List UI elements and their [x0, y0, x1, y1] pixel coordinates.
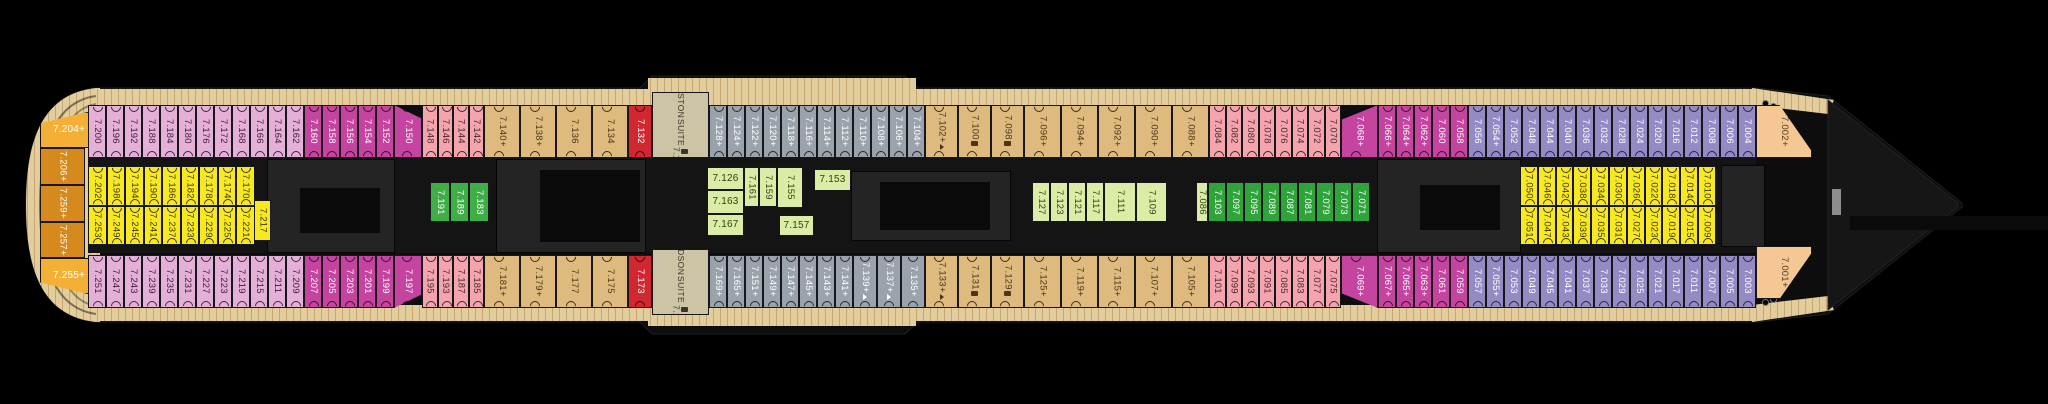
- cabin-7.074[interactable]: 7.074: [1292, 105, 1309, 158]
- cabin-7.173[interactable]: 7.173: [628, 255, 652, 308]
- cabin-number: 7.061: [1436, 269, 1446, 294]
- cabin-number: 7.107: [1149, 266, 1159, 291]
- cabin-number: 7.060: [1436, 119, 1446, 144]
- cabin-7.164[interactable]: 7.164: [268, 105, 286, 158]
- cabin-7.134[interactable]: 7.134: [592, 105, 628, 158]
- cabin-7.135[interactable]: 7.135+: [901, 255, 925, 308]
- cabin-7.037[interactable]: 7.037: [1576, 255, 1594, 308]
- cabin-7.077[interactable]: 7.077: [1308, 255, 1325, 308]
- cabin-number: 7.156: [344, 119, 354, 144]
- cabin-7.085[interactable]: 7.085: [1275, 255, 1292, 308]
- cabin-7.025[interactable]: 7.025: [1630, 255, 1648, 308]
- cabin-7.040[interactable]: 7.040: [1558, 105, 1576, 158]
- cabin-7.142[interactable]: 7.142: [469, 105, 485, 158]
- cabin-number: 7.130: [671, 147, 681, 158]
- cabin-7.114[interactable]: 7.114+: [817, 105, 835, 158]
- cabin-number: 7.187: [456, 269, 466, 294]
- cabin-7.201[interactable]: 7.201: [358, 255, 376, 308]
- cabin-7.116[interactable]: 7.116+: [799, 105, 817, 158]
- cabin-7.160[interactable]: 7.160: [304, 105, 322, 158]
- cabin-7.006[interactable]: 7.006: [1720, 105, 1738, 158]
- cabin-7.162[interactable]: 7.162: [286, 105, 304, 158]
- cabin-7.103[interactable]: 7.103: [1208, 182, 1226, 222]
- cabin-7.044[interactable]: 7.044: [1540, 105, 1558, 158]
- cabin-number: 7.098: [1003, 115, 1013, 140]
- cabin-7.003[interactable]: 7.003: [1738, 255, 1756, 308]
- cabin-number: 7.225: [222, 213, 232, 238]
- cabin-7.120[interactable]: 7.120+: [763, 105, 781, 158]
- suite-name: BOSTON: [676, 92, 685, 118]
- cabin-7.067[interactable]: 7.067+: [1378, 255, 1396, 308]
- cabin-7.223[interactable]: 7.223: [214, 255, 232, 308]
- cabin-7.153[interactable]: 7.153: [814, 169, 851, 191]
- cabin-7.166[interactable]: 7.166: [250, 105, 268, 158]
- cabin-7.175[interactable]: 7.175: [592, 255, 628, 308]
- cabin-7.193[interactable]: 7.193: [438, 255, 454, 308]
- cabin-number: 7.169: [713, 266, 723, 291]
- cabin-7.150[interactable]: 7.150: [394, 105, 422, 158]
- cabin-7.130[interactable]: BOSTONSUITE7.130: [652, 92, 709, 158]
- cabin-7.161[interactable]: 7.161: [744, 167, 759, 207]
- cabin-7.159[interactable]: 7.159: [759, 167, 777, 207]
- cabin-7.243[interactable]: 7.243: [124, 255, 142, 308]
- cabin-7.199[interactable]: 7.199: [376, 255, 394, 308]
- cabin-number: 7.089: [1266, 190, 1276, 215]
- cabin-7.145[interactable]: 7.145+: [799, 255, 817, 308]
- cabin-7.195[interactable]: 7.195: [422, 255, 438, 308]
- cabin-7.154[interactable]: 7.154: [358, 105, 376, 158]
- cabin-7.231[interactable]: 7.231: [178, 255, 196, 308]
- cabin-7.027[interactable]: 7.027: [1627, 206, 1645, 245]
- cabin-number: 7.106: [893, 116, 903, 141]
- cabin-7.061[interactable]: 7.061: [1432, 255, 1450, 308]
- cabin-7.108[interactable]: 7.108+: [871, 105, 889, 158]
- cabin-number: 7.219: [236, 269, 246, 294]
- cabin-7.084[interactable]: 7.084: [1209, 105, 1226, 158]
- cabin-7.117[interactable]: 7.117: [1086, 182, 1104, 222]
- cabin-7.086[interactable]: 7.086: [1196, 182, 1208, 222]
- cabin-number: 7.152: [380, 119, 390, 144]
- cabin-7.253[interactable]: 7.253: [88, 206, 107, 245]
- cabin-7.155[interactable]: 7.155: [777, 167, 803, 208]
- cabin-7.020[interactable]: 7.020: [1648, 105, 1666, 158]
- cabin-7.239[interactable]: 7.239: [142, 255, 160, 308]
- cabin-number: 7.253: [93, 213, 103, 238]
- cabin-number: 7.095: [1248, 190, 1258, 215]
- cabin-7.109[interactable]: 7.109: [1136, 182, 1167, 222]
- cabin-7.094[interactable]: 7.094+: [1061, 105, 1098, 158]
- cabin-number: 7.164: [272, 119, 282, 144]
- cabin-number: 7.017: [1670, 269, 1680, 294]
- cabin-7.119[interactable]: 7.119+: [1061, 255, 1098, 308]
- cabin-7.075[interactable]: 7.075: [1325, 255, 1342, 308]
- cabin-7.225[interactable]: 7.225: [218, 206, 237, 245]
- cabin-7.104[interactable]: 7.104+: [907, 105, 925, 158]
- cabin-7.031[interactable]: 7.031: [1609, 206, 1627, 245]
- cabin-7.180[interactable]: 7.180: [178, 105, 196, 158]
- cabin-7.182[interactable]: 7.182: [181, 166, 200, 206]
- cabin-7.111[interactable]: 7.111: [1104, 182, 1136, 222]
- cabin-7.157[interactable]: 7.157: [779, 215, 814, 236]
- cabin-7.106[interactable]: 7.106+: [889, 105, 907, 158]
- cabin-7.179[interactable]: 7.179+: [520, 255, 556, 308]
- cabin-7.200[interactable]: 7.200: [88, 105, 106, 158]
- cabin-7.059[interactable]: 7.059: [1450, 255, 1468, 308]
- cabin-7.101[interactable]: 7.101: [1209, 255, 1226, 308]
- cabin-7.209[interactable]: 7.209: [286, 255, 304, 308]
- cabin-7.188[interactable]: 7.188: [142, 105, 160, 158]
- cabin-7.014[interactable]: 7.014: [1680, 166, 1698, 206]
- cabin-7.191[interactable]: 7.191: [430, 182, 450, 222]
- cabin-number: 7.048: [1526, 119, 1536, 144]
- cabin-7.071[interactable]: 7.071: [1352, 182, 1370, 222]
- cabin-7.221[interactable]: 7.221: [236, 206, 255, 245]
- cabin-7.076[interactable]: 7.076: [1275, 105, 1292, 158]
- cabin-7.127[interactable]: 7.127: [1032, 182, 1050, 222]
- cabin-7.198[interactable]: 7.198: [107, 166, 126, 206]
- cabin-7.152[interactable]: 7.152: [376, 105, 394, 158]
- cabin-7.156[interactable]: 7.156: [340, 105, 358, 158]
- cabin-number: 7.209: [290, 269, 300, 294]
- cabin-number: 7.022: [1649, 174, 1659, 199]
- cabin-7.137[interactable]: 7.137+: [877, 255, 901, 308]
- cabin-7.168[interactable]: 7.168: [232, 105, 250, 158]
- cabin-7.211[interactable]: 7.211: [268, 255, 286, 308]
- cabin-7.001[interactable]: 7.001+: [1756, 246, 1812, 299]
- cabin-7.259[interactable]: 7.259+: [40, 185, 85, 222]
- cabin-7.251[interactable]: 7.251: [88, 255, 106, 308]
- cabin-number: 7.245: [130, 213, 140, 238]
- cabin-7.069[interactable]: 7.069+: [1341, 255, 1378, 308]
- cabin-number: 7.099: [1229, 269, 1239, 294]
- cabin-7.170[interactable]: 7.170: [236, 166, 255, 206]
- cabin-7.125[interactable]: 7.125+: [1024, 255, 1061, 308]
- cabin-7.121[interactable]: 7.121: [1068, 182, 1086, 222]
- cabin-7.028[interactable]: 7.028: [1612, 105, 1630, 158]
- cabin-7.100[interactable]: 7.100: [958, 105, 991, 158]
- cabin-7.235[interactable]: 7.235: [160, 255, 178, 308]
- cabin-7.035[interactable]: 7.035: [1591, 206, 1609, 245]
- cabin-7.190[interactable]: 7.190: [144, 166, 163, 206]
- cabin-7.131[interactable]: 7.131: [958, 255, 991, 308]
- cabin-7.089[interactable]: 7.089: [1262, 182, 1280, 222]
- cabin-7.202[interactable]: 7.202: [88, 166, 107, 206]
- cabin-7.241[interactable]: 7.241: [144, 206, 163, 245]
- cabin-number: 7.040: [1562, 119, 1572, 144]
- cabin-7.249[interactable]: 7.249: [107, 206, 126, 245]
- cabin-7.055[interactable]: 7.055+: [1486, 255, 1504, 308]
- cabin-7.081[interactable]: 7.081: [1298, 182, 1316, 222]
- cabin-7.092[interactable]: 7.092+: [1098, 105, 1135, 158]
- cabin-number: 7.215: [254, 269, 264, 294]
- cabin-number: 7.128: [713, 116, 723, 141]
- cabin-7.078[interactable]: 7.078: [1259, 105, 1276, 158]
- cabin-7.107[interactable]: 7.107+: [1135, 255, 1172, 308]
- cabin-7.045[interactable]: 7.045: [1540, 255, 1558, 308]
- cabin-7.051[interactable]: 7.051: [1520, 206, 1538, 245]
- cabin-7.082[interactable]: 7.082: [1226, 105, 1243, 158]
- cabin-7.174[interactable]: 7.174: [218, 166, 237, 206]
- cabin-number: 7.063: [1418, 266, 1428, 291]
- cabin-7.038[interactable]: 7.038: [1573, 166, 1591, 206]
- cabin-7.066[interactable]: 7.066+: [1378, 105, 1396, 158]
- cabin-7.017[interactable]: 7.017: [1666, 255, 1684, 308]
- cabin-number: 7.090: [1149, 116, 1159, 141]
- cabin-7.012[interactable]: 7.012: [1684, 105, 1702, 158]
- cabin-7.098[interactable]: 7.098: [991, 105, 1024, 158]
- cabin-7.118[interactable]: 7.118+: [781, 105, 799, 158]
- cabin-7.054[interactable]: 7.054+: [1486, 105, 1504, 158]
- cabin-7.167[interactable]: 7.167: [707, 214, 744, 236]
- cabin-number: 7.079: [1320, 190, 1330, 215]
- cabin-7.123[interactable]: 7.123: [1050, 182, 1068, 222]
- cabin-7.245[interactable]: 7.245: [125, 206, 144, 245]
- cabin-7.133[interactable]: 7.133+: [925, 255, 958, 308]
- cabin-7.110[interactable]: 7.110+: [853, 105, 871, 158]
- cabin-7.016[interactable]: 7.016: [1666, 105, 1684, 158]
- cabin-number: 7.074: [1295, 119, 1305, 144]
- cabin-7.032[interactable]: 7.032: [1594, 105, 1612, 158]
- cabin-7.053[interactable]: 7.053: [1504, 255, 1522, 308]
- cabin-7.042[interactable]: 7.042: [1556, 166, 1574, 206]
- cabin-7.024[interactable]: 7.024: [1630, 105, 1648, 158]
- cabin-number: 7.123: [1054, 190, 1064, 215]
- cabin-7.147[interactable]: 7.147+: [781, 255, 799, 308]
- sofa-icon: [1004, 291, 1011, 296]
- cabin-7.052[interactable]: 7.052: [1504, 105, 1522, 158]
- cabin-7.073[interactable]: 7.073: [1334, 182, 1352, 222]
- cabin-number: 7.131: [970, 265, 980, 290]
- cabin-7.018[interactable]: 7.018: [1662, 166, 1680, 206]
- cabin-7.148[interactable]: 7.148: [422, 105, 438, 158]
- cabin-number: 7.051: [1524, 213, 1534, 238]
- cabin-7.095[interactable]: 7.095: [1244, 182, 1262, 222]
- cabin-7.063[interactable]: 7.063+: [1414, 255, 1432, 308]
- cabin-7.203[interactable]: 7.203: [340, 255, 358, 308]
- cabin-7.207[interactable]: 7.207: [304, 255, 322, 308]
- cabin-7.023[interactable]: 7.023: [1645, 206, 1663, 245]
- cabin-number: 7.247: [110, 269, 120, 294]
- cabin-7.046[interactable]: 7.046: [1538, 166, 1556, 206]
- cabin-number: 7.167: [712, 220, 738, 230]
- cabin-7.171[interactable]: HUDSONSUITE7.171: [652, 249, 709, 315]
- cabin-7.186[interactable]: 7.186: [162, 166, 181, 206]
- cabin-7.257[interactable]: 7.257+: [40, 222, 85, 258]
- cabin-number: 7.004: [1742, 119, 1752, 144]
- cabin-7.158[interactable]: 7.158: [322, 105, 340, 158]
- cabin-7.070[interactable]: 7.070: [1325, 105, 1342, 158]
- cabin-7.079[interactable]: 7.079: [1316, 182, 1334, 222]
- cabin-7.021[interactable]: 7.021: [1648, 255, 1666, 308]
- cabin-7.138[interactable]: 7.138+: [520, 105, 556, 158]
- cabin-7.080[interactable]: 7.080: [1242, 105, 1259, 158]
- cabin-7.141[interactable]: 7.141+: [835, 255, 853, 308]
- cabin-7.026[interactable]: 7.026: [1627, 166, 1645, 206]
- cabin-7.165[interactable]: 7.165+: [727, 255, 745, 308]
- cabin-7.194[interactable]: 7.194: [125, 166, 144, 206]
- cabin-7.005[interactable]: 7.005: [1720, 255, 1738, 308]
- cabin-7.128[interactable]: 7.128+: [709, 105, 727, 158]
- cabin-number: 7.255: [53, 271, 79, 281]
- cabin-7.139[interactable]: 7.139+: [853, 255, 877, 308]
- cabin-7.177[interactable]: 7.177: [556, 255, 592, 308]
- cabin-number: 7.237: [167, 213, 177, 238]
- cabin-7.247[interactable]: 7.247: [106, 255, 124, 308]
- cabin-7.237[interactable]: 7.237: [162, 206, 181, 245]
- cabin-7.112[interactable]: 7.112+: [835, 105, 853, 158]
- cabin-number: 7.002: [1779, 116, 1789, 141]
- cabin-7.064[interactable]: 7.064+: [1396, 105, 1414, 158]
- cabin-number: 7.196: [110, 119, 120, 144]
- cabin-number: 7.259: [58, 188, 68, 213]
- cabin-7.068[interactable]: 7.068+: [1341, 105, 1378, 158]
- cabin-7.181[interactable]: 7.181+: [484, 255, 520, 308]
- cabin-number: 7.155: [785, 175, 795, 200]
- cabin-number: 7.062: [1418, 116, 1428, 141]
- cabin-7.140[interactable]: 7.140+: [484, 105, 520, 158]
- cabin-7.010[interactable]: 7.010: [1698, 166, 1716, 206]
- cabin-7.057[interactable]: 7.057: [1468, 255, 1486, 308]
- cabin-number: 7.116: [803, 117, 813, 141]
- cabin-number: 7.111: [1115, 190, 1125, 213]
- cabin-number: 7.105: [1186, 266, 1196, 291]
- accessible-icon: [940, 294, 944, 300]
- cabin-7.041[interactable]: 7.041: [1558, 255, 1576, 308]
- cabin-7.206[interactable]: 7.206+: [40, 148, 85, 185]
- cabin-7.122[interactable]: 7.122+: [745, 105, 763, 158]
- cabin-7.172[interactable]: 7.172: [214, 105, 232, 158]
- cabin-7.102[interactable]: 7.102+: [925, 105, 958, 158]
- cabin-7.105[interactable]: 7.105+: [1172, 255, 1209, 308]
- cabin-number: 7.084: [1213, 119, 1223, 144]
- cabin-7.215[interactable]: 7.215: [250, 255, 268, 308]
- cabin-7.050[interactable]: 7.050: [1520, 166, 1538, 206]
- cabin-7.144[interactable]: 7.144: [453, 105, 469, 158]
- cabin-number: 7.127: [1036, 190, 1046, 215]
- cabin-7.219[interactable]: 7.219: [232, 255, 250, 308]
- cabin-7.132[interactable]: 7.132: [628, 105, 652, 158]
- cabin-7.009[interactable]: 7.009: [1698, 206, 1716, 245]
- cabin-7.036[interactable]: 7.036: [1576, 105, 1594, 158]
- deck-plan: 7.204+7.206+7.259+7.257+7.255+7.2007.196…: [0, 0, 2048, 404]
- cabin-number: 7.035: [1595, 213, 1605, 238]
- cabin-7.008[interactable]: 7.008: [1702, 105, 1720, 158]
- cabin-7.002[interactable]: 7.002+: [1756, 105, 1812, 158]
- cabin-7.129[interactable]: 7.129: [991, 255, 1024, 308]
- cabin-7.217[interactable]: 7.217: [254, 200, 271, 241]
- cabin-7.151[interactable]: 7.151+: [745, 255, 763, 308]
- cabin-7.196[interactable]: 7.196: [106, 105, 124, 158]
- cabin-7.185[interactable]: 7.185: [469, 255, 485, 308]
- cabin-number: 7.211: [272, 269, 282, 293]
- cabin-7.039[interactable]: 7.039: [1573, 206, 1591, 245]
- cabin-7.233[interactable]: 7.233: [181, 206, 200, 245]
- cabin-7.034[interactable]: 7.034: [1591, 166, 1609, 206]
- cabin-7.022[interactable]: 7.022: [1645, 166, 1663, 206]
- cabin-7.062[interactable]: 7.062+: [1414, 105, 1432, 158]
- cabin-7.088[interactable]: 7.088+: [1172, 105, 1209, 158]
- cabin-7.126[interactable]: 7.126: [707, 167, 744, 190]
- cabin-7.096[interactable]: 7.096+: [1024, 105, 1061, 158]
- cabin-number: 7.138: [533, 116, 543, 141]
- cabin-7.090[interactable]: 7.090+: [1135, 105, 1172, 158]
- cabin-number: 7.126: [712, 174, 738, 184]
- cabin-7.056[interactable]: 7.056: [1468, 105, 1486, 158]
- cabin-7.083[interactable]: 7.083: [1292, 255, 1309, 308]
- cabin-number: 7.070: [1328, 119, 1338, 144]
- cabin-7.183[interactable]: 7.183: [469, 182, 489, 222]
- cabin-number: 7.100: [970, 115, 980, 140]
- cabin-7.176[interactable]: 7.176: [196, 105, 214, 158]
- cabin-7.033[interactable]: 7.033: [1594, 255, 1612, 308]
- cabin-7.149[interactable]: 7.149+: [763, 255, 781, 308]
- cabin-7.143[interactable]: 7.143+: [817, 255, 835, 308]
- cabin-7.047[interactable]: 7.047: [1538, 206, 1556, 245]
- cabin-7.091[interactable]: 7.091: [1259, 255, 1276, 308]
- cabin-7.011[interactable]: 7.011: [1684, 255, 1702, 308]
- cabin-7.124[interactable]: 7.124+: [727, 105, 745, 158]
- cabin-number: 7.161: [747, 175, 757, 200]
- cabin-7.205[interactable]: 7.205: [322, 255, 340, 308]
- cabin-7.004[interactable]: 7.004: [1738, 105, 1756, 158]
- cabin-number: 7.175: [605, 269, 615, 294]
- cabin-7.097[interactable]: 7.097: [1226, 182, 1244, 222]
- cabin-7.093[interactable]: 7.093: [1242, 255, 1259, 308]
- cabin-number: 7.194: [130, 174, 140, 199]
- cabin-7.087[interactable]: 7.087: [1280, 182, 1298, 222]
- cabin-7.197[interactable]: 7.197: [394, 255, 422, 308]
- cabin-number: 7.057: [1472, 269, 1482, 294]
- cabin-7.229[interactable]: 7.229: [199, 206, 218, 245]
- cabin-7.019[interactable]: 7.019: [1662, 206, 1680, 245]
- cabin-number: 7.202: [93, 174, 103, 199]
- cabin-number: 7.163: [712, 197, 738, 207]
- cabin-7.060[interactable]: 7.060: [1432, 105, 1450, 158]
- cabin-number: 7.028: [1616, 119, 1626, 144]
- cabin-number: 7.151: [749, 266, 759, 291]
- cabin-7.072[interactable]: 7.072: [1308, 105, 1325, 158]
- cabin-7.169[interactable]: 7.169+: [709, 255, 727, 308]
- cabin-7.030[interactable]: 7.030: [1609, 166, 1627, 206]
- cabin-7.189[interactable]: 7.189: [450, 182, 469, 222]
- cabin-7.048[interactable]: 7.048: [1522, 105, 1540, 158]
- cabin-7.043[interactable]: 7.043: [1556, 206, 1574, 245]
- cabin-7.227[interactable]: 7.227: [196, 255, 214, 308]
- cabin-7.115[interactable]: 7.115+: [1098, 255, 1135, 308]
- cabin-number: 7.235: [164, 269, 174, 294]
- cabin-7.015[interactable]: 7.015: [1680, 206, 1698, 245]
- cabin-number: 7.186: [167, 174, 177, 199]
- cabin-7.178[interactable]: 7.178: [199, 166, 218, 206]
- cabin-number: 7.136: [569, 119, 579, 144]
- cabin-number: 7.241: [148, 213, 158, 238]
- cabin-7.007[interactable]: 7.007: [1702, 255, 1720, 308]
- cabin-number: 7.066: [1382, 116, 1392, 141]
- cabin-7.099[interactable]: 7.099: [1226, 255, 1243, 308]
- cabin-7.136[interactable]: 7.136: [556, 105, 592, 158]
- cabin-7.065[interactable]: 7.065+: [1396, 255, 1414, 308]
- cabin-7.049[interactable]: 7.049: [1522, 255, 1540, 308]
- cabin-7.187[interactable]: 7.187: [453, 255, 469, 308]
- cabin-7.184[interactable]: 7.184: [160, 105, 178, 158]
- cabin-number: 7.168: [236, 119, 246, 144]
- cabin-7.058[interactable]: 7.058: [1450, 105, 1468, 158]
- cabin-7.163[interactable]: 7.163: [707, 190, 744, 214]
- cabin-7.192[interactable]: 7.192: [124, 105, 142, 158]
- cabin-7.146[interactable]: 7.146: [438, 105, 454, 158]
- cabin-7.029[interactable]: 7.029: [1612, 255, 1630, 308]
- cabin-number: 7.153: [819, 175, 845, 185]
